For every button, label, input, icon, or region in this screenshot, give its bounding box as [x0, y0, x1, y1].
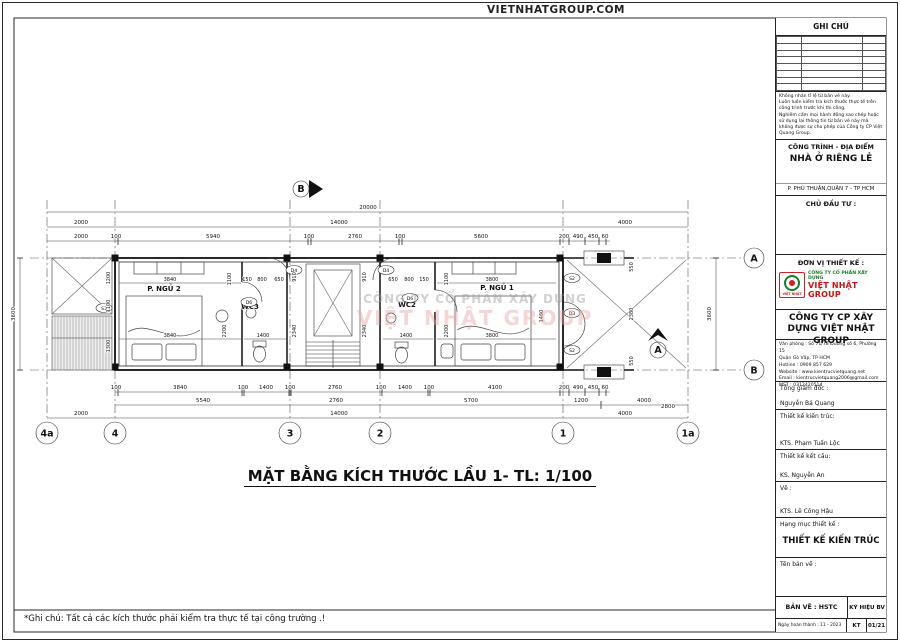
bed-bedroom2	[126, 296, 202, 366]
dim-top-mid-1: 14000	[330, 220, 348, 226]
dim-top-detail-7: 200	[559, 234, 570, 240]
sink-wc2	[386, 313, 396, 323]
site-banner: VIETNHATGROUP.COM	[411, 4, 701, 16]
dim-int-v5: 2200	[222, 325, 228, 338]
director-name: Nguyễn Bá Quang	[780, 400, 835, 407]
dim-bottom-detail-6: 100	[376, 385, 387, 391]
dim-top-detail-1: 100	[111, 234, 122, 240]
note-line: Nghiêm cấm mọi hành động sao chép hoặc s…	[779, 113, 883, 138]
sheet-name-section: Tên bản vẽ :	[776, 558, 886, 597]
dim-bottom-mid-3: 1200	[574, 398, 588, 404]
window-symbol-bottom	[584, 365, 624, 379]
dim-int-v10: 1100	[444, 273, 450, 286]
dim-int-v2: 1100	[106, 300, 112, 313]
project-header: CÔNG TRÌNH - ĐỊA ĐIỂM	[788, 143, 874, 151]
tag-s2: S2	[569, 276, 575, 282]
dim-int-h12: 3800	[486, 333, 499, 339]
dim-int-h4: 800	[257, 277, 267, 283]
dim-top-detail-6: 5600	[474, 234, 488, 240]
dim-int-v1: 1200	[106, 272, 112, 285]
grid-col-4a: 4a	[40, 429, 53, 440]
dim-bottom-mid-2: 5700	[464, 398, 478, 404]
category-label: Hạng mục thiết kế :	[776, 518, 886, 528]
footnote: *Ghi chú: Tất cả các kích thước phải kiể…	[24, 614, 325, 624]
logo-company-line1: CÔNG TY CỔ PHẦN XÂY DỰNG	[808, 271, 884, 281]
dim-int-h3: 150	[242, 277, 252, 283]
investor-section: CHỦ ĐẦU TƯ :	[776, 196, 886, 255]
sheet-type-row: BẢN VẼ : HSTC KÝ HIỆU BV	[776, 597, 886, 619]
stairs	[306, 264, 360, 368]
dim-int-h10: 1400	[400, 333, 413, 339]
section-marker-b: B	[293, 180, 323, 198]
stool	[216, 310, 228, 322]
dim-height-left: 3600	[11, 307, 17, 321]
bed-bedroom1	[455, 296, 531, 366]
structural-label: Thiết kế kết cấu:	[776, 450, 886, 460]
dim-bottom-detail-7: 1400	[398, 385, 412, 391]
sheet-symbol-label: KÝ HIỆU BV	[847, 597, 886, 618]
logo-badge-text: VIỆT NHẬT	[782, 292, 801, 296]
dim-bottom-detail-3: 1400	[259, 385, 273, 391]
dim-top-detail-3: 100	[304, 234, 315, 240]
title-block: GHI CHÚ Không nhân tỉ lệ từ bản vẽ này. …	[775, 18, 886, 632]
drawing-title: MẶT BẰNG KÍCH THƯỚC LẦU 1- TL: 1/100	[65, 466, 775, 485]
notes-text: Không nhân tỉ lệ từ bản vẽ này. Luôn luô…	[776, 92, 886, 140]
dim-int-v7: 2340	[292, 325, 298, 338]
dim-int-h7: 650	[388, 277, 398, 283]
contact-line: Quận Gò Vấp, TP HCM	[779, 356, 883, 363]
dim-top-detail-2: 5940	[206, 234, 220, 240]
section-marker-a-label: A	[654, 345, 662, 356]
toilet-wc2	[395, 342, 408, 363]
walls	[112, 255, 564, 371]
category-section: Hạng mục thiết kế : THIẾT KẾ KIẾN TRÚC	[776, 518, 886, 558]
sheet-name-label: Tên bản vẽ :	[776, 558, 886, 568]
date-finished: Ngày hoàn thành : 11 - 2023	[776, 619, 846, 632]
dim-int-h11: 3800	[486, 277, 499, 283]
dim-int-v6: 910	[292, 272, 298, 282]
dim-int-h9: 150	[419, 277, 429, 283]
investor-label: CHỦ ĐẦU TƯ :	[776, 196, 886, 208]
dim-top-detail-8: 490	[573, 234, 584, 240]
dim-int-v11: 2200	[444, 325, 450, 338]
dim-int-h2: 3840	[164, 333, 177, 339]
floor-plan-canvas: P. NGỦ 2 WC3 WC2 P. NGỦ 1 S1 D6 D4 D4 D6…	[0, 0, 900, 642]
section-marker-b-label: B	[297, 184, 304, 195]
dim-top-detail-10: 60	[602, 234, 609, 240]
logo-ring-icon	[784, 275, 800, 291]
grid-col-2: 2	[377, 429, 384, 440]
dim-bottom-detail-4: 100	[285, 385, 296, 391]
dim-bottom-detail-13: 60	[602, 385, 609, 391]
draftsman-name: KTS. Lê Công Hậu	[780, 508, 833, 515]
section-marker-a: A	[648, 328, 668, 358]
designer-label: ĐƠN VỊ THIẾT KẾ :	[776, 255, 886, 267]
grid-col-1a: 1a	[681, 429, 694, 440]
dim-int-v4: 1100	[227, 273, 233, 286]
interior-dimension-texts: 1200 1100 1300 1100 2200 910 2340 910 23…	[106, 262, 635, 366]
sheet-type: BẢN VẼ : HSTC	[776, 597, 847, 618]
wardrobe-bedroom2	[134, 262, 204, 274]
category-value: THIẾT KẾ KIẾN TRÚC	[776, 536, 886, 546]
dim-int-v12: 1460	[539, 310, 545, 323]
project-name: NHÀ Ở RIÊNG LẺ	[790, 154, 873, 164]
dim-bottom-detail-8: 100	[424, 385, 435, 391]
architect-section: Thiết kế kiến trúc: KTS. Phạm Tuấn Lộc	[776, 410, 886, 450]
grid-col-4: 4	[112, 429, 119, 440]
dim-bottom-detail-9: 4100	[488, 385, 502, 391]
dim-int-h8: 800	[404, 277, 414, 283]
dim-int-v14: 2380	[629, 308, 635, 321]
dim-int-h5: 650	[274, 277, 284, 283]
dim-overall: 20000	[359, 205, 377, 211]
draftsman-label: Vẽ :	[776, 482, 886, 492]
company-contact: Văn phòng : Số 71/78 Đường số 6, Phường …	[776, 340, 886, 382]
dim-height-right: 3600	[707, 307, 713, 321]
sheet-code: 01/21	[866, 619, 886, 632]
grid-row-b: B	[750, 366, 757, 377]
company-logo-row: VIỆT NHẬT CÔNG TY CỔ PHẦN XÂY DỰNG VIỆT …	[776, 267, 886, 299]
dim-bottom-detail-2: 100	[238, 385, 249, 391]
dim-bottom-detail-11: 490	[573, 385, 584, 391]
tag-d6: D6	[407, 296, 414, 302]
grid-row-a: A	[750, 254, 758, 265]
logo-company-name: CÔNG TY CỔ PHẦN XÂY DỰNG VIỆT NHẬT GROUP	[808, 271, 884, 299]
logo-company-line2: VIỆT NHẬT GROUP	[808, 281, 884, 299]
dim-bottom-detail-12: 450	[588, 385, 599, 391]
dim-int-h6: 1400	[257, 333, 270, 339]
dim-top-mid-2: 4000	[618, 220, 632, 226]
dim-int-v8: 910	[362, 272, 368, 282]
structural-section: Thiết kế kết cấu: KS. Nguyễn An	[776, 450, 886, 482]
drawing-title-text: MẶT BẰNG KÍCH THƯỚC LẦU 1- TL: 1/100	[244, 467, 596, 487]
note-line: Luôn luôn kiểm tra kích thước thực tế tr…	[779, 100, 883, 112]
designer-section: ĐƠN VỊ THIẾT KẾ : VIỆT NHẬT CÔNG TY CỔ P…	[776, 255, 886, 310]
furniture	[126, 262, 531, 366]
grid-col-1: 1	[560, 429, 567, 440]
dim-top-mid-0: 2000	[74, 220, 88, 226]
draftsman-section: Vẽ : KTS. Lê Công Hậu	[776, 482, 886, 518]
revision-table	[776, 36, 886, 91]
right-void	[563, 251, 686, 379]
toilet-wc3	[253, 341, 266, 362]
dim-bottom-detail-0: 100	[111, 385, 122, 391]
dimension-texts: 20000 2000 14000 4000 2000 100 5940 100 …	[11, 205, 713, 417]
dim-top-detail-4: 2760	[348, 234, 362, 240]
project-section: CÔNG TRÌNH - ĐỊA ĐIỂM NHÀ Ở RIÊNG LẺ P. …	[776, 140, 886, 196]
tag-s2: S2	[569, 348, 575, 354]
dim-bottom-detail-10: 200	[559, 385, 570, 391]
architect-label: Thiết kế kiến trúc:	[776, 410, 886, 420]
dim-bottom-overall-1: 14000	[330, 411, 348, 417]
room-label-bedroom1: P. NGỦ 1	[480, 282, 514, 292]
dim-top-detail-9: 450	[588, 234, 599, 240]
tag-d6: D6	[246, 300, 253, 306]
tag-d3: D3	[569, 311, 576, 317]
dim-int-v3: 1300	[106, 340, 112, 353]
room-label-bedroom2: P. NGỦ 2	[147, 283, 181, 293]
dim-bottom-mid-5: 2800	[661, 404, 675, 410]
dimension-lines	[20, 212, 716, 418]
drawing-sheet: P. NGỦ 2 WC3 WC2 P. NGỦ 1 S1 D6 D4 D4 D6…	[0, 0, 900, 642]
sheet-date-row: Ngày hoàn thành : 11 - 2023 KT 01/21	[776, 619, 886, 632]
dim-top-detail-0: 2000	[74, 234, 88, 240]
structural-name: KS. Nguyễn An	[780, 472, 825, 479]
director-section: Tổng giám đốc : Nguyễn Bá Quang	[776, 382, 886, 410]
director-label: Tổng giám đốc :	[776, 382, 886, 392]
notes-table	[776, 36, 886, 92]
left-annex	[52, 258, 112, 370]
dim-top-detail-5: 100	[395, 234, 406, 240]
tag-d4: D4	[383, 268, 390, 274]
dimension-ticks	[17, 237, 719, 409]
grid-col-3: 3	[287, 429, 294, 440]
kt-code: KT	[846, 619, 866, 632]
dim-int-h1: 3840	[164, 277, 177, 283]
dim-bottom-overall-0: 2000	[74, 411, 88, 417]
project-address: P. PHÚ THUẬN,QUẬN 7 - TP HCM	[776, 183, 886, 192]
dim-int-v13: 550	[629, 262, 635, 272]
contact-line: Hotline : 0909 857 629	[779, 363, 883, 370]
wardrobe-bedroom1	[452, 262, 516, 274]
dim-bottom-mid-1: 2760	[329, 398, 343, 404]
architect-name: KTS. Phạm Tuấn Lộc	[780, 440, 840, 447]
window-symbol-top	[584, 251, 624, 265]
company-logo: VIỆT NHẬT	[779, 272, 805, 298]
dim-int-v15: 550	[629, 356, 635, 366]
dim-int-v9: 2340	[362, 325, 368, 338]
notes-header: GHI CHÚ	[776, 18, 886, 36]
dim-bottom-mid-0: 5540	[196, 398, 210, 404]
contact-line: Văn phòng : Số 71/78 Đường số 6, Phường …	[779, 342, 883, 356]
sheet-frame	[3, 3, 898, 640]
dim-bottom-mid-4: 4000	[637, 398, 651, 404]
company-name: CÔNG TY CP XÂY DỰNG VIỆT NHẬT GROUP	[776, 310, 886, 340]
dim-bottom-overall-2: 4000	[618, 411, 632, 417]
dim-bottom-detail-1: 3840	[173, 385, 187, 391]
dim-bottom-detail-5: 2760	[328, 385, 342, 391]
chair	[441, 344, 453, 358]
